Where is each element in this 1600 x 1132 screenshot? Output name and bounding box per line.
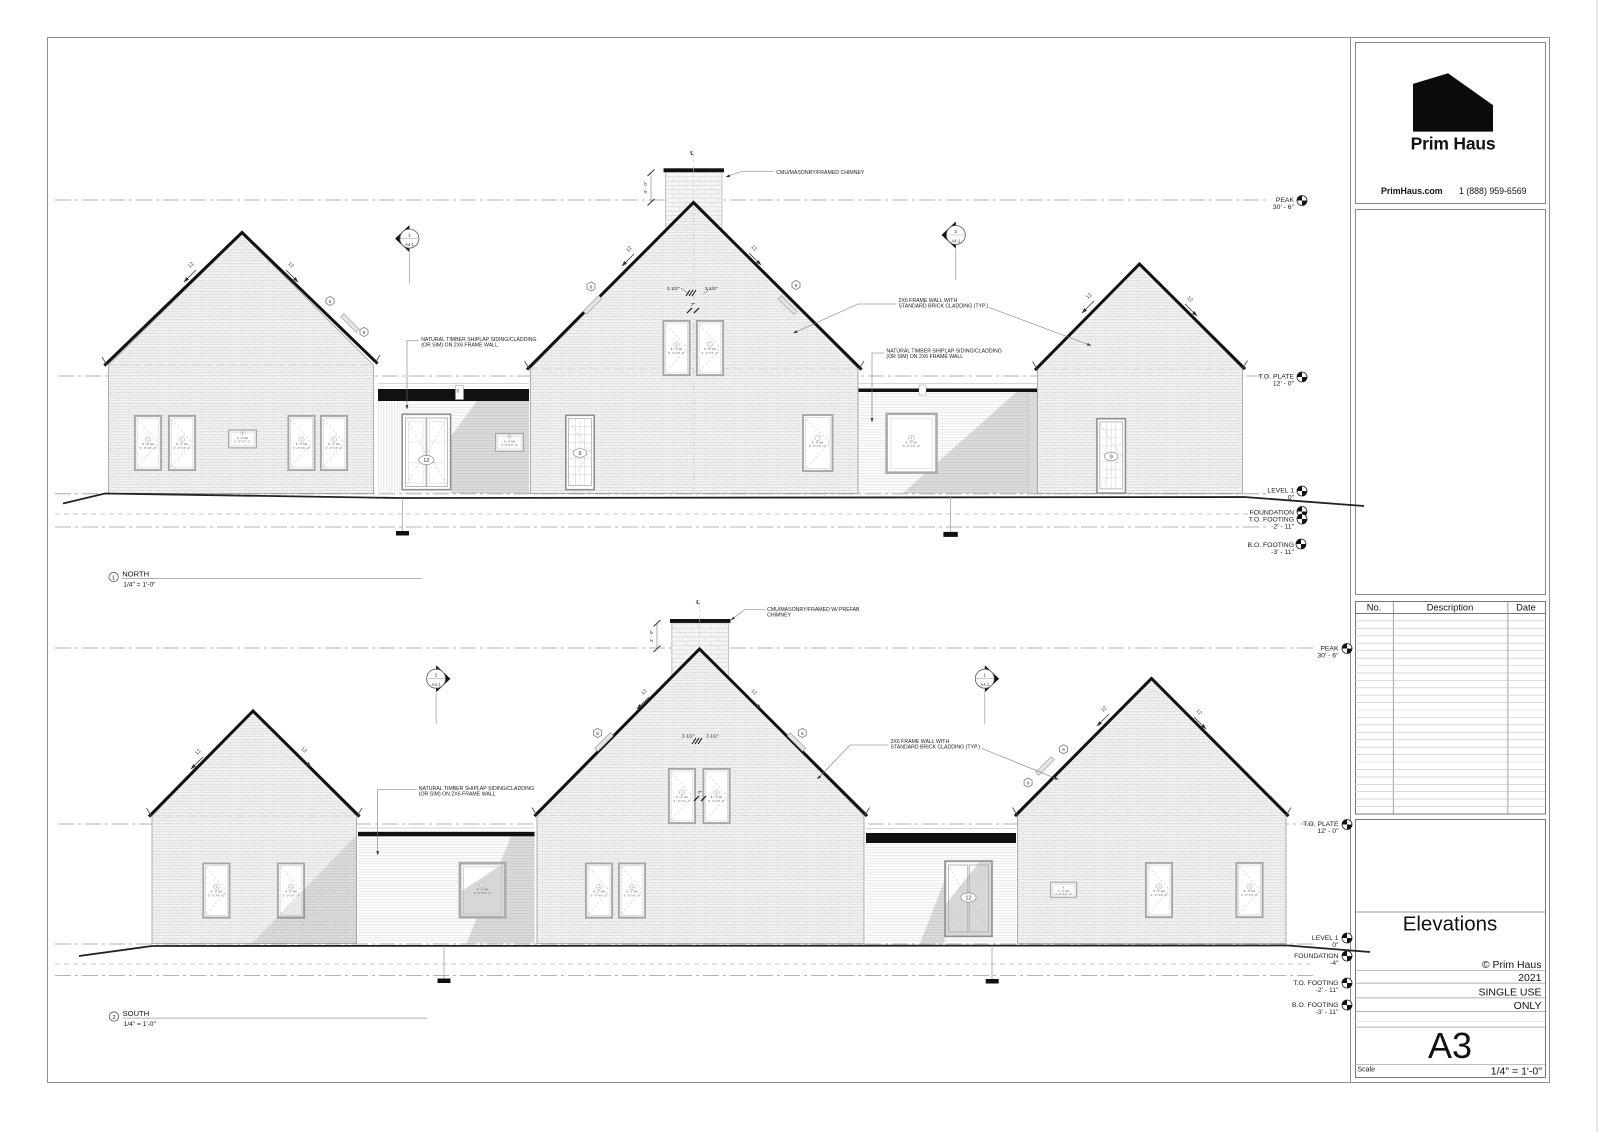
svg-text:B.O. FOOTING: B.O. FOOTING	[1248, 542, 1294, 549]
svg-text:-3' - 11": -3' - 11"	[1271, 549, 1294, 556]
svg-text:(OR SIM) ON 2X6 FRAME WALL: (OR SIM) ON 2X6 FRAME WALL	[419, 792, 496, 798]
svg-text:3 1/2": 3 1/2"	[667, 286, 680, 292]
svg-text:-2' - 11": -2' - 11"	[1316, 987, 1339, 994]
svg-text:1: 1	[112, 576, 115, 582]
svg-text:PrimHaus.com: PrimHaus.com	[1381, 186, 1443, 196]
svg-text:8' - 0" HH: 8' - 0" HH	[906, 441, 918, 445]
svg-text:8' - 0" HH: 8' - 0" HH	[812, 441, 824, 445]
svg-text:NORTH: NORTH	[122, 570, 149, 579]
svg-text:T.O. PLATE: T.O. PLATE	[1259, 374, 1295, 381]
svg-text:LEVEL 1: LEVEL 1	[1312, 935, 1339, 942]
svg-text:A4.1: A4.1	[980, 682, 989, 687]
svg-text:STANDARD BRICK CLADDING (TYP.): STANDARD BRICK CLADDING (TYP.)	[891, 745, 981, 751]
svg-text:℄: ℄	[695, 600, 700, 606]
svg-text:T.O. FOOTING: T.O. FOOTING	[1293, 980, 1338, 987]
svg-text:-4": -4"	[1330, 960, 1339, 967]
svg-text:ONLY: ONLY	[1514, 1000, 1542, 1012]
svg-text:-2' - 11": -2' - 11"	[1271, 524, 1294, 531]
svg-text:7": 7"	[698, 790, 703, 796]
svg-text:-3' - 11": -3' - 11"	[1316, 1009, 1339, 1016]
svg-text:SOUTH: SOUTH	[123, 1009, 150, 1018]
svg-text:2021: 2021	[1518, 972, 1542, 984]
svg-text:A4.1: A4.1	[405, 242, 414, 247]
svg-text:1/4" = 1'-0": 1/4" = 1'-0"	[1491, 1066, 1542, 1078]
svg-text:2: 2	[112, 1015, 115, 1021]
svg-text:1 (888) 959-6569: 1 (888) 959-6569	[1459, 186, 1527, 196]
svg-text:Scale: Scale	[1358, 1067, 1376, 1074]
svg-text:A4.1: A4.1	[432, 682, 441, 687]
svg-text:CHIMNEY: CHIMNEY	[767, 613, 791, 619]
svg-text:(OR SIM) ON 2X6 FRAME WALL: (OR SIM) ON 2X6 FRAME WALL	[886, 354, 963, 360]
svg-text:PEAK: PEAK	[1320, 646, 1339, 653]
svg-text:T.O. PLATE: T.O. PLATE	[1303, 821, 1339, 828]
svg-text:LEVEL 1: LEVEL 1	[1267, 488, 1294, 495]
svg-text:1/4" = 1'-0": 1/4" = 1'-0"	[123, 582, 156, 589]
svg-text:2: 2	[954, 229, 957, 235]
svg-text:B.O. FOOTING: B.O. FOOTING	[1292, 1002, 1338, 1009]
svg-text:0": 0"	[1288, 495, 1295, 502]
svg-text:7": 7"	[691, 302, 696, 308]
svg-text:12' - 0": 12' - 0"	[1273, 381, 1295, 388]
svg-text:3' - 0" X 2' - 0": 3' - 0" X 2' - 0"	[1055, 892, 1071, 896]
svg-text:Description: Description	[1427, 603, 1474, 613]
svg-text:3' - 0": 3' - 0"	[643, 181, 649, 194]
svg-text:3' - 0" X 6' - 0": 3' - 0" X 6' - 0"	[809, 444, 826, 448]
svg-text:(OR SIM) ON 2X6 FRAME WALL: (OR SIM) ON 2X6 FRAME WALL	[421, 343, 498, 349]
svg-text:T.O. FOOTING: T.O. FOOTING	[1249, 517, 1294, 524]
svg-text:STANDARD BRICK CLADDING (TYP.): STANDARD BRICK CLADDING (TYP.)	[899, 304, 989, 310]
svg-text:PEAK: PEAK	[1276, 197, 1295, 204]
svg-text:℄: ℄	[689, 151, 694, 157]
svg-text:1: 1	[983, 673, 986, 679]
svg-text:30' - 6": 30' - 6"	[1273, 204, 1295, 211]
svg-text:No.: No.	[1367, 603, 1381, 613]
svg-text:3 1/2": 3 1/2"	[682, 734, 695, 740]
svg-text:FOUNDATION: FOUNDATION	[1294, 953, 1339, 960]
svg-text:2: 2	[435, 673, 438, 679]
svg-text:Date: Date	[1516, 603, 1536, 613]
svg-text:30' - 6": 30' - 6"	[1317, 653, 1339, 660]
svg-text:12: 12	[965, 896, 971, 902]
svg-text:0": 0"	[1332, 942, 1339, 949]
svg-text:8' - 0" HH: 8' - 0" HH	[477, 888, 489, 892]
svg-text:CMU/MASONRY/FRAMED CHIMNEY: CMU/MASONRY/FRAMED CHIMNEY	[776, 170, 865, 176]
svg-text:Prim Haus: Prim Haus	[1411, 134, 1496, 154]
svg-text:12' - 0": 12' - 0"	[1317, 828, 1339, 835]
svg-text:3' - 0": 3' - 0"	[649, 630, 655, 643]
svg-text:1/4" = 1'-0": 1/4" = 1'-0"	[124, 1021, 157, 1028]
svg-text:FOUNDATION: FOUNDATION	[1250, 510, 1295, 517]
svg-text:Elevations: Elevations	[1403, 913, 1498, 936]
svg-text:3 1/2": 3 1/2"	[706, 734, 719, 740]
svg-text:A3: A3	[1428, 1025, 1472, 1066]
svg-text:5' - 0" X 6' - 0": 5' - 0" X 6' - 0"	[474, 891, 491, 895]
svg-text:10: 10	[456, 389, 460, 393]
svg-text:1: 1	[408, 233, 411, 239]
svg-text:A4.1: A4.1	[951, 238, 960, 243]
svg-text:SINGLE USE: SINGLE USE	[1478, 987, 1541, 999]
svg-text:© Prim Haus: © Prim Haus	[1482, 959, 1542, 971]
svg-text:5' - 0" X 6' - 0": 5' - 0" X 6' - 0"	[903, 444, 920, 448]
